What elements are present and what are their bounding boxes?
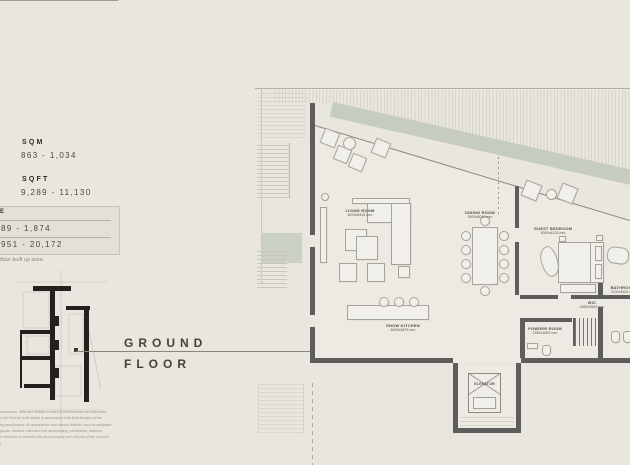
boundary-dashed-line xyxy=(312,383,313,465)
dresser xyxy=(560,284,596,293)
nightstand xyxy=(596,235,603,241)
brochure-page: SQM 863 - 1,034 SQFT 9,289 - 11,130 E 89… xyxy=(0,0,630,465)
dining-chair xyxy=(499,245,509,255)
room-label-guest-bedroom: GUEST BEDROOM 5000x4125 mm xyxy=(517,226,589,236)
bar-stool xyxy=(394,297,404,307)
armchair xyxy=(339,263,357,282)
elevator-lobby-steps xyxy=(460,415,514,426)
room-label-elevator: ELEVATOR xyxy=(468,382,501,387)
toilet xyxy=(611,331,620,343)
dining-chair xyxy=(461,273,471,283)
dining-chair xyxy=(461,259,471,269)
disclaimer-line: ng permissions. All accessories and inte… xyxy=(0,422,126,428)
wall-elevator-left xyxy=(453,363,458,433)
side-table xyxy=(321,193,329,201)
floor-plan: LIVING ROOM 8200x8415 mm DINING ROOM 550… xyxy=(255,85,630,465)
bidet xyxy=(623,331,630,343)
parking-grid xyxy=(258,383,304,433)
elevator-inner-box xyxy=(473,397,496,409)
wall-bedroom-bottom-left xyxy=(520,295,558,299)
area-box-rule-1 xyxy=(0,220,111,221)
room-label-dining: DINING ROOM 5500x5040 mm xyxy=(447,210,513,220)
nightstand xyxy=(559,236,566,242)
bar-stool xyxy=(379,297,389,307)
exterior-stairs-upper xyxy=(257,143,290,198)
bed-headboard-line xyxy=(590,243,591,282)
bathtub xyxy=(606,246,630,266)
wall-bedroom-bottom-right xyxy=(571,295,630,299)
wall-dining-bedroom-lower xyxy=(515,242,519,295)
area-box-row2: 951 - 20,172 xyxy=(1,240,63,249)
room-label-living: LIVING ROOM 8200x8415 mm xyxy=(325,208,395,218)
dining-chair xyxy=(461,245,471,255)
room-label-powder: POWDER ROOM 2950x1600 mm xyxy=(521,326,569,336)
room-label-kitchen: SHOW KITCHEN 8400x3875 mm xyxy=(373,323,433,333)
building-section-key-diagram xyxy=(15,270,115,430)
wall-elevator-bottom xyxy=(453,428,521,433)
wall-powder-left xyxy=(520,318,525,358)
sqft-value: 9,289 - 11,130 xyxy=(21,188,92,197)
wall-powder-top xyxy=(520,318,572,322)
armchair xyxy=(367,263,385,282)
sqm-label: SQM xyxy=(22,139,45,146)
room-label-wic: WIC 1850x2500 mm xyxy=(570,300,614,310)
dining-chair xyxy=(499,231,509,241)
dining-chair xyxy=(499,273,509,283)
dining-chair xyxy=(499,259,509,269)
wall-elevator-right xyxy=(516,363,521,433)
disclaimer-line: e brochure or between the plot boundary,… xyxy=(0,434,126,440)
dining-chair xyxy=(480,286,490,296)
kitchen-island xyxy=(347,305,429,320)
wall-bottom-right xyxy=(521,358,630,363)
disclaimer-text: nformation, data and details included in… xyxy=(0,409,126,447)
area-box-heading-fragment: E xyxy=(0,209,6,215)
wall-bottom-left xyxy=(310,358,453,363)
sqm-value: 863 - 1,034 xyxy=(21,151,77,160)
bar-stool xyxy=(409,297,419,307)
dining-table xyxy=(472,227,498,285)
dining-chair xyxy=(461,231,471,241)
wall-left-upper xyxy=(310,103,315,235)
footnote: floor built up area. xyxy=(0,257,44,263)
wall-dining-bedroom-upper xyxy=(515,186,519,228)
site-grid-lines xyxy=(258,93,306,138)
divider-mid xyxy=(0,0,118,1)
powder-toilet xyxy=(542,345,551,356)
coffee-table xyxy=(356,236,378,260)
page-title-line2: FLOOR xyxy=(124,357,191,371)
page-title-line1: GROUND xyxy=(124,336,207,350)
powder-sink xyxy=(527,343,538,349)
disclaimer-line: ) xyxy=(0,440,126,446)
dotted-joint-line xyxy=(498,157,499,217)
wall-left-mid xyxy=(310,247,315,315)
room-label-bathroom: BATHROOM 2100x4625 mm xyxy=(603,285,630,295)
area-box-rule-2 xyxy=(0,237,111,238)
sqft-label: SQFT xyxy=(22,176,49,183)
pillow xyxy=(595,264,602,279)
site-boundary-line xyxy=(255,88,630,89)
side-table xyxy=(398,266,410,278)
area-box-row1: 89 - 1,874 xyxy=(1,224,51,233)
pillow xyxy=(595,246,602,261)
service-stairs xyxy=(573,318,599,346)
exterior-stairs-lower xyxy=(257,250,287,288)
outdoor-round-table xyxy=(546,189,557,200)
